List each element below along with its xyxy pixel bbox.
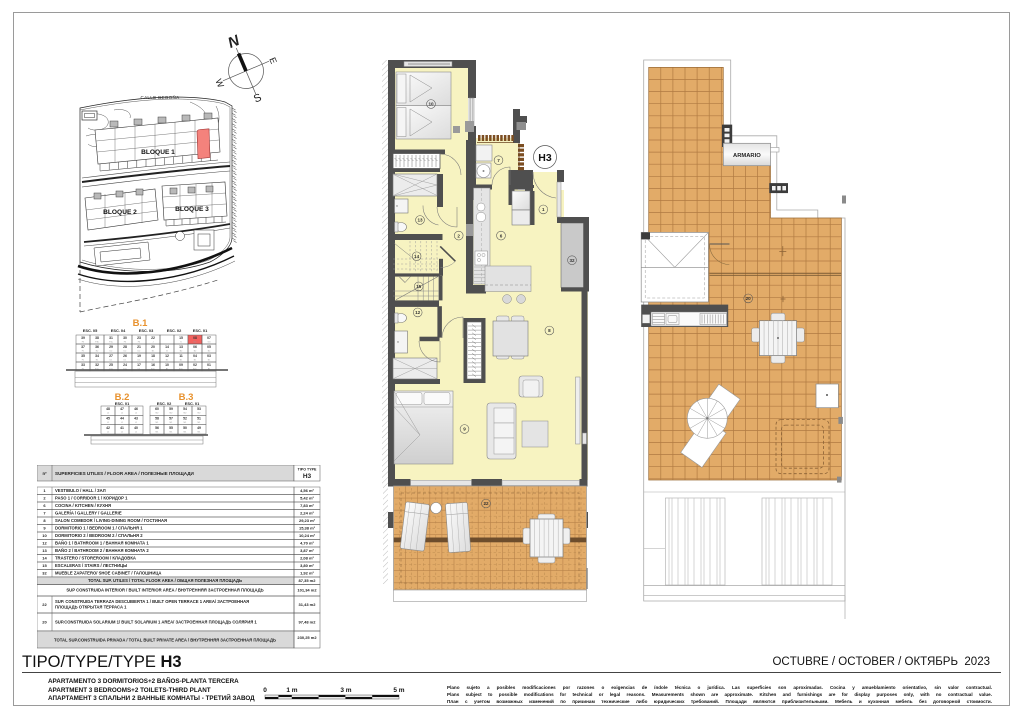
svg-text:06: 06 — [193, 345, 197, 349]
svg-text:L2: L2 — [135, 413, 138, 415]
svg-text:ESCALERAS / STAIRS / ЛЕСТНИЦЫ: ESCALERAS / STAIRS / ЛЕСТНИЦЫ — [55, 563, 127, 568]
svg-text:7: 7 — [497, 158, 500, 163]
svg-text:SUPERFICIES UTILES / FLOOR ARE: SUPERFICIES UTILES / FLOOR AREA / ПОЛЕЗН… — [55, 471, 194, 476]
svg-text:34: 34 — [95, 354, 99, 358]
svg-text:08: 08 — [193, 336, 197, 340]
svg-text:45: 45 — [106, 417, 110, 421]
svg-text:13: 13 — [179, 345, 183, 349]
svg-text:M1: M1 — [198, 431, 202, 433]
svg-text:B1: B1 — [194, 360, 197, 362]
svg-text:9: 9 — [43, 526, 46, 531]
svg-text:44: 44 — [120, 417, 124, 421]
svg-text:52: 52 — [183, 417, 187, 421]
svg-text:31,43 m2: 31,43 m2 — [299, 602, 317, 607]
svg-text:L1: L1 — [121, 431, 124, 433]
svg-text:39: 39 — [81, 336, 85, 340]
svg-text:1 m: 1 m — [286, 687, 297, 694]
svg-text:M2: M2 — [156, 413, 160, 415]
svg-text:33: 33 — [81, 363, 85, 367]
svg-text:230,25 m2: 230,25 m2 — [297, 635, 317, 640]
svg-text:D1: D1 — [138, 360, 142, 362]
svg-text:47: 47 — [120, 407, 124, 411]
svg-text:10: 10 — [165, 363, 169, 367]
svg-text:VESTIBULO / HALL / ЗАЛ: VESTIBULO / HALL / ЗАЛ — [55, 488, 106, 493]
svg-text:37: 37 — [81, 345, 85, 349]
svg-text:D2: D2 — [110, 351, 114, 353]
svg-text:TOTAL SUP.CONSTRUIDA PRIVADA /: TOTAL SUP.CONSTRUIDA PRIVADA / TOTAL BUI… — [54, 638, 276, 643]
svg-text:BLOQUE 2: BLOQUE 2 — [103, 209, 137, 216]
svg-text:15: 15 — [416, 284, 422, 289]
svg-text:23: 23 — [137, 336, 141, 340]
svg-text:28: 28 — [123, 345, 127, 349]
svg-text:ESC. 03: ESC. 03 — [139, 328, 154, 333]
svg-text:43: 43 — [134, 417, 138, 421]
svg-text:ARMARIO: ARMARIO — [733, 153, 761, 159]
svg-text:05: 05 — [207, 345, 211, 349]
svg-text:27: 27 — [109, 354, 113, 358]
svg-text:M1: M1 — [198, 422, 202, 424]
svg-text:M1: M1 — [156, 431, 160, 433]
svg-text:F3: F3 — [124, 342, 127, 344]
svg-text:ESC. 01: ESC. 01 — [193, 328, 208, 333]
svg-text:3,80 m²: 3,80 m² — [300, 563, 314, 568]
svg-text:M1: M1 — [156, 422, 160, 424]
svg-text:12: 12 — [42, 541, 47, 546]
svg-text:10: 10 — [428, 102, 434, 107]
svg-text:E1: E1 — [96, 360, 99, 362]
svg-text:14: 14 — [165, 345, 169, 349]
svg-text:2: 2 — [457, 233, 460, 238]
svg-text:7,83 m²: 7,83 m² — [300, 503, 314, 508]
svg-text:M2: M2 — [170, 413, 174, 415]
svg-text:2,08 m²: 2,08 m² — [300, 556, 314, 561]
svg-text:E: E — [267, 56, 279, 65]
svg-text:ESC. 02: ESC. 02 — [167, 328, 182, 333]
svg-text:M1: M1 — [170, 422, 174, 424]
svg-text:1: 1 — [43, 488, 46, 493]
svg-text:ESC. 01: ESC. 01 — [115, 401, 130, 406]
svg-text:MUEBLE ZAPATERO/ SHOE CABINET: MUEBLE ZAPATERO/ SHOE CABINET / ГАЛОШНИЦ… — [55, 571, 161, 576]
svg-text:19: 19 — [137, 354, 141, 358]
svg-text:5,42 m²: 5,42 m² — [300, 496, 314, 501]
svg-text:S: S — [252, 92, 263, 106]
svg-text:49: 49 — [197, 426, 201, 430]
svg-text:46: 46 — [134, 407, 138, 411]
svg-text:M2: M2 — [198, 413, 202, 415]
svg-text:55: 55 — [169, 426, 173, 430]
svg-text:M1: M1 — [170, 431, 174, 433]
svg-text:15: 15 — [42, 563, 47, 568]
svg-text:13: 13 — [42, 548, 47, 553]
svg-text:15,38 m²: 15,38 m² — [299, 526, 316, 531]
svg-text:0: 0 — [263, 687, 267, 694]
svg-text:41: 41 — [120, 426, 124, 430]
svg-text:6: 6 — [500, 233, 503, 238]
svg-text:42: 42 — [106, 426, 110, 430]
svg-text:29: 29 — [109, 345, 113, 349]
svg-text:B: B — [166, 351, 168, 353]
svg-text:PASO 1 / CORRIDOR 1 / КОРИДОР: PASO 1 / CORRIDOR 1 / КОРИДОР 1 — [55, 496, 128, 501]
svg-text:7: 7 — [43, 511, 46, 516]
svg-text:3,87 m²: 3,87 m² — [300, 548, 314, 553]
svg-text:SUP CONSTRUIDA INTERIOR / BUIL: SUP CONSTRUIDA INTERIOR / BUILT INTERIOR… — [66, 588, 263, 593]
svg-text:ESC. 02: ESC. 02 — [157, 401, 172, 406]
svg-text:22: 22 — [483, 501, 489, 506]
svg-text:40: 40 — [134, 426, 138, 430]
svg-text:L2: L2 — [121, 413, 124, 415]
svg-text:BLOQUE 3: BLOQUE 3 — [175, 206, 209, 213]
svg-text:30: 30 — [123, 336, 127, 340]
svg-text:101,34 m2: 101,34 m2 — [297, 588, 317, 593]
svg-text:L1: L1 — [135, 431, 138, 433]
svg-text:8: 8 — [548, 328, 551, 333]
svg-text:L1: L1 — [135, 422, 138, 424]
svg-text:18: 18 — [151, 354, 155, 358]
svg-text:4,56 m²: 4,56 m² — [300, 488, 314, 493]
svg-text:04: 04 — [193, 354, 197, 358]
svg-text:53: 53 — [197, 407, 201, 411]
svg-text:31: 31 — [109, 336, 113, 340]
svg-text:W: W — [213, 77, 226, 89]
svg-text:09: 09 — [179, 363, 183, 367]
svg-text:60: 60 — [155, 407, 159, 411]
svg-text:02: 02 — [193, 363, 197, 367]
svg-text:B2: B2 — [194, 351, 197, 353]
svg-text:B1: B1 — [152, 360, 155, 362]
svg-text:24: 24 — [123, 363, 127, 367]
svg-text:B2: B2 — [208, 351, 211, 353]
svg-text:F3a: F3a — [109, 342, 113, 344]
svg-text:ПЛОЩАДЬ ОТКРЫТАЯ ТЕРРАСА 1: ПЛОЩАДЬ ОТКРЫТАЯ ТЕРРАСА 1 — [55, 605, 127, 610]
svg-text:DORMITORIO 1 / BEDROOM 1 / СПА: DORMITORIO 1 / BEDROOM 1 / СПАЛЬНЯ 1 — [55, 526, 143, 531]
svg-text:SALON COMEDOR / LIVING-DINING: SALON COMEDOR / LIVING-DINING ROOM / ГОС… — [55, 518, 167, 523]
svg-text:10: 10 — [42, 533, 47, 538]
svg-text:H3: H3 — [303, 473, 312, 480]
svg-text:07: 07 — [207, 336, 211, 340]
svg-text:F1: F1 — [82, 360, 85, 362]
svg-text:E2: E2 — [96, 351, 99, 353]
svg-text:B2: B2 — [180, 351, 183, 353]
svg-text:01: 01 — [207, 363, 211, 367]
svg-text:TRASTERO / STOREROOM / КЛАДОВК: TRASTERO / STOREROOM / КЛАДОВКА — [55, 556, 136, 561]
svg-text:20: 20 — [151, 345, 155, 349]
svg-text:J: J — [152, 342, 153, 344]
svg-text:B1: B1 — [180, 360, 183, 362]
svg-text:M1: M1 — [184, 422, 188, 424]
svg-text:12: 12 — [165, 354, 169, 358]
svg-text:2,24 m²: 2,24 m² — [300, 511, 314, 516]
svg-text:DORMITORIO 2 / BEDROOM 2 / СПА: DORMITORIO 2 / BEDROOM 2 / СПАЛЬНЯ 2 — [55, 533, 143, 538]
svg-text:21: 21 — [137, 345, 141, 349]
svg-text:29,23 m²: 29,23 m² — [299, 518, 316, 523]
svg-text:97,48 m2: 97,48 m2 — [299, 620, 317, 625]
svg-text:22: 22 — [151, 336, 155, 340]
svg-text:M1: M1 — [184, 431, 188, 433]
svg-text:D2: D2 — [138, 351, 142, 353]
svg-text:17: 17 — [137, 363, 141, 367]
svg-text:M2: M2 — [184, 413, 188, 415]
svg-text:L1: L1 — [121, 422, 124, 424]
svg-text:15: 15 — [179, 336, 183, 340]
svg-text:D1: D1 — [124, 360, 128, 362]
svg-text:9: 9 — [463, 427, 466, 432]
svg-text:BAÑO 1 / BATHROOM 1 / ВАННАЯ К: BAÑO 1 / BATHROOM 1 / ВАННАЯ КОМНАТА 1 — [55, 541, 149, 546]
svg-text:4,70 m²: 4,70 m² — [300, 541, 314, 546]
svg-text:20: 20 — [42, 620, 47, 625]
svg-text:14: 14 — [414, 254, 420, 259]
svg-text:B1: B1 — [166, 360, 169, 362]
svg-text:nº: nº — [42, 471, 47, 476]
svg-text:14: 14 — [42, 556, 47, 561]
svg-text:D2: D2 — [124, 351, 128, 353]
svg-text:32: 32 — [95, 363, 99, 367]
svg-text:54: 54 — [183, 407, 187, 411]
svg-text:57: 57 — [169, 417, 173, 421]
svg-text:03: 03 — [207, 354, 211, 358]
svg-text:12: 12 — [415, 310, 421, 315]
svg-text:F3: F3 — [138, 342, 141, 344]
svg-text:22: 22 — [42, 602, 47, 607]
svg-text:SUP. CONSTRUIDA TERRAZA DESCUB: SUP. CONSTRUIDA TERRAZA DESCUBIERTA 1 / … — [55, 599, 249, 604]
svg-text:13: 13 — [417, 218, 423, 223]
svg-text:L1: L1 — [107, 431, 110, 433]
svg-text:51: 51 — [197, 417, 201, 421]
svg-text:B1: B1 — [208, 360, 211, 362]
svg-text:SUP.CONSTRUIDA SOLARIUM 1/ BUI: SUP.CONSTRUIDA SOLARIUM 1/ BUILT SOLARIU… — [55, 620, 257, 625]
svg-text:10,24 m²: 10,24 m² — [299, 533, 316, 538]
svg-text:BLOQUE 1: BLOQUE 1 — [141, 149, 175, 156]
svg-text:G3: G3 — [208, 342, 212, 344]
svg-text:6: 6 — [43, 503, 46, 508]
svg-text:11: 11 — [179, 354, 183, 358]
svg-text:59: 59 — [169, 407, 173, 411]
svg-text:58: 58 — [155, 417, 159, 421]
svg-text:TIPO TYPE: TIPO TYPE — [298, 468, 317, 472]
svg-text:ESC. 05: ESC. 05 — [83, 328, 98, 333]
svg-text:BAÑO 2 / BATHROOM 2 / ВАННАЯ К: BAÑO 2 / BATHROOM 2 / ВАННАЯ КОМНАТА 2 — [55, 548, 149, 553]
svg-text:L1: L1 — [107, 422, 110, 424]
svg-text:F1: F1 — [82, 351, 85, 353]
svg-text:H3: H3 — [538, 152, 552, 164]
svg-text:GALERÍA / GALLERY / GALLERIE: GALERÍA / GALLERY / GALLERIE — [55, 511, 122, 516]
svg-text:8: 8 — [43, 518, 46, 523]
svg-text:1: 1 — [542, 207, 545, 212]
svg-text:32: 32 — [42, 571, 47, 576]
svg-text:N: N — [225, 32, 243, 52]
svg-text:5 m: 5 m — [393, 687, 404, 694]
svg-text:56: 56 — [155, 426, 159, 430]
svg-text:35: 35 — [81, 354, 85, 358]
svg-text:L2: L2 — [107, 413, 110, 415]
svg-text:B1: B1 — [152, 351, 155, 353]
svg-text:38: 38 — [95, 336, 99, 340]
svg-text:48: 48 — [106, 407, 110, 411]
svg-text:36: 36 — [95, 345, 99, 349]
svg-text:20: 20 — [746, 296, 752, 301]
svg-text:16: 16 — [151, 363, 155, 367]
svg-text:1,92 m²: 1,92 m² — [300, 571, 314, 576]
svg-text:ESC. 01: ESC. 01 — [185, 401, 200, 406]
svg-text:ESC. 04: ESC. 04 — [111, 328, 126, 333]
svg-text:S: S — [180, 342, 182, 344]
svg-text:D1: D1 — [110, 360, 114, 362]
svg-text:3 m: 3 m — [340, 687, 351, 694]
svg-text:26: 26 — [123, 354, 127, 358]
svg-text:TOTAL SUP. UTILES / TOTAL FLOO: TOTAL SUP. UTILES / TOTAL FLOOR AREA / О… — [88, 578, 242, 583]
svg-text:COCINA / KITCHEN / КУХНЯ: COCINA / KITCHEN / КУХНЯ — [55, 503, 111, 508]
svg-text:F3: F3 — [82, 342, 85, 344]
svg-text:25: 25 — [109, 363, 113, 367]
svg-text:50: 50 — [183, 426, 187, 430]
svg-text:2: 2 — [43, 496, 46, 501]
svg-text:32: 32 — [569, 258, 575, 263]
svg-text:F3b: F3b — [95, 342, 99, 344]
svg-text:87,35 m2: 87,35 m2 — [299, 578, 317, 583]
